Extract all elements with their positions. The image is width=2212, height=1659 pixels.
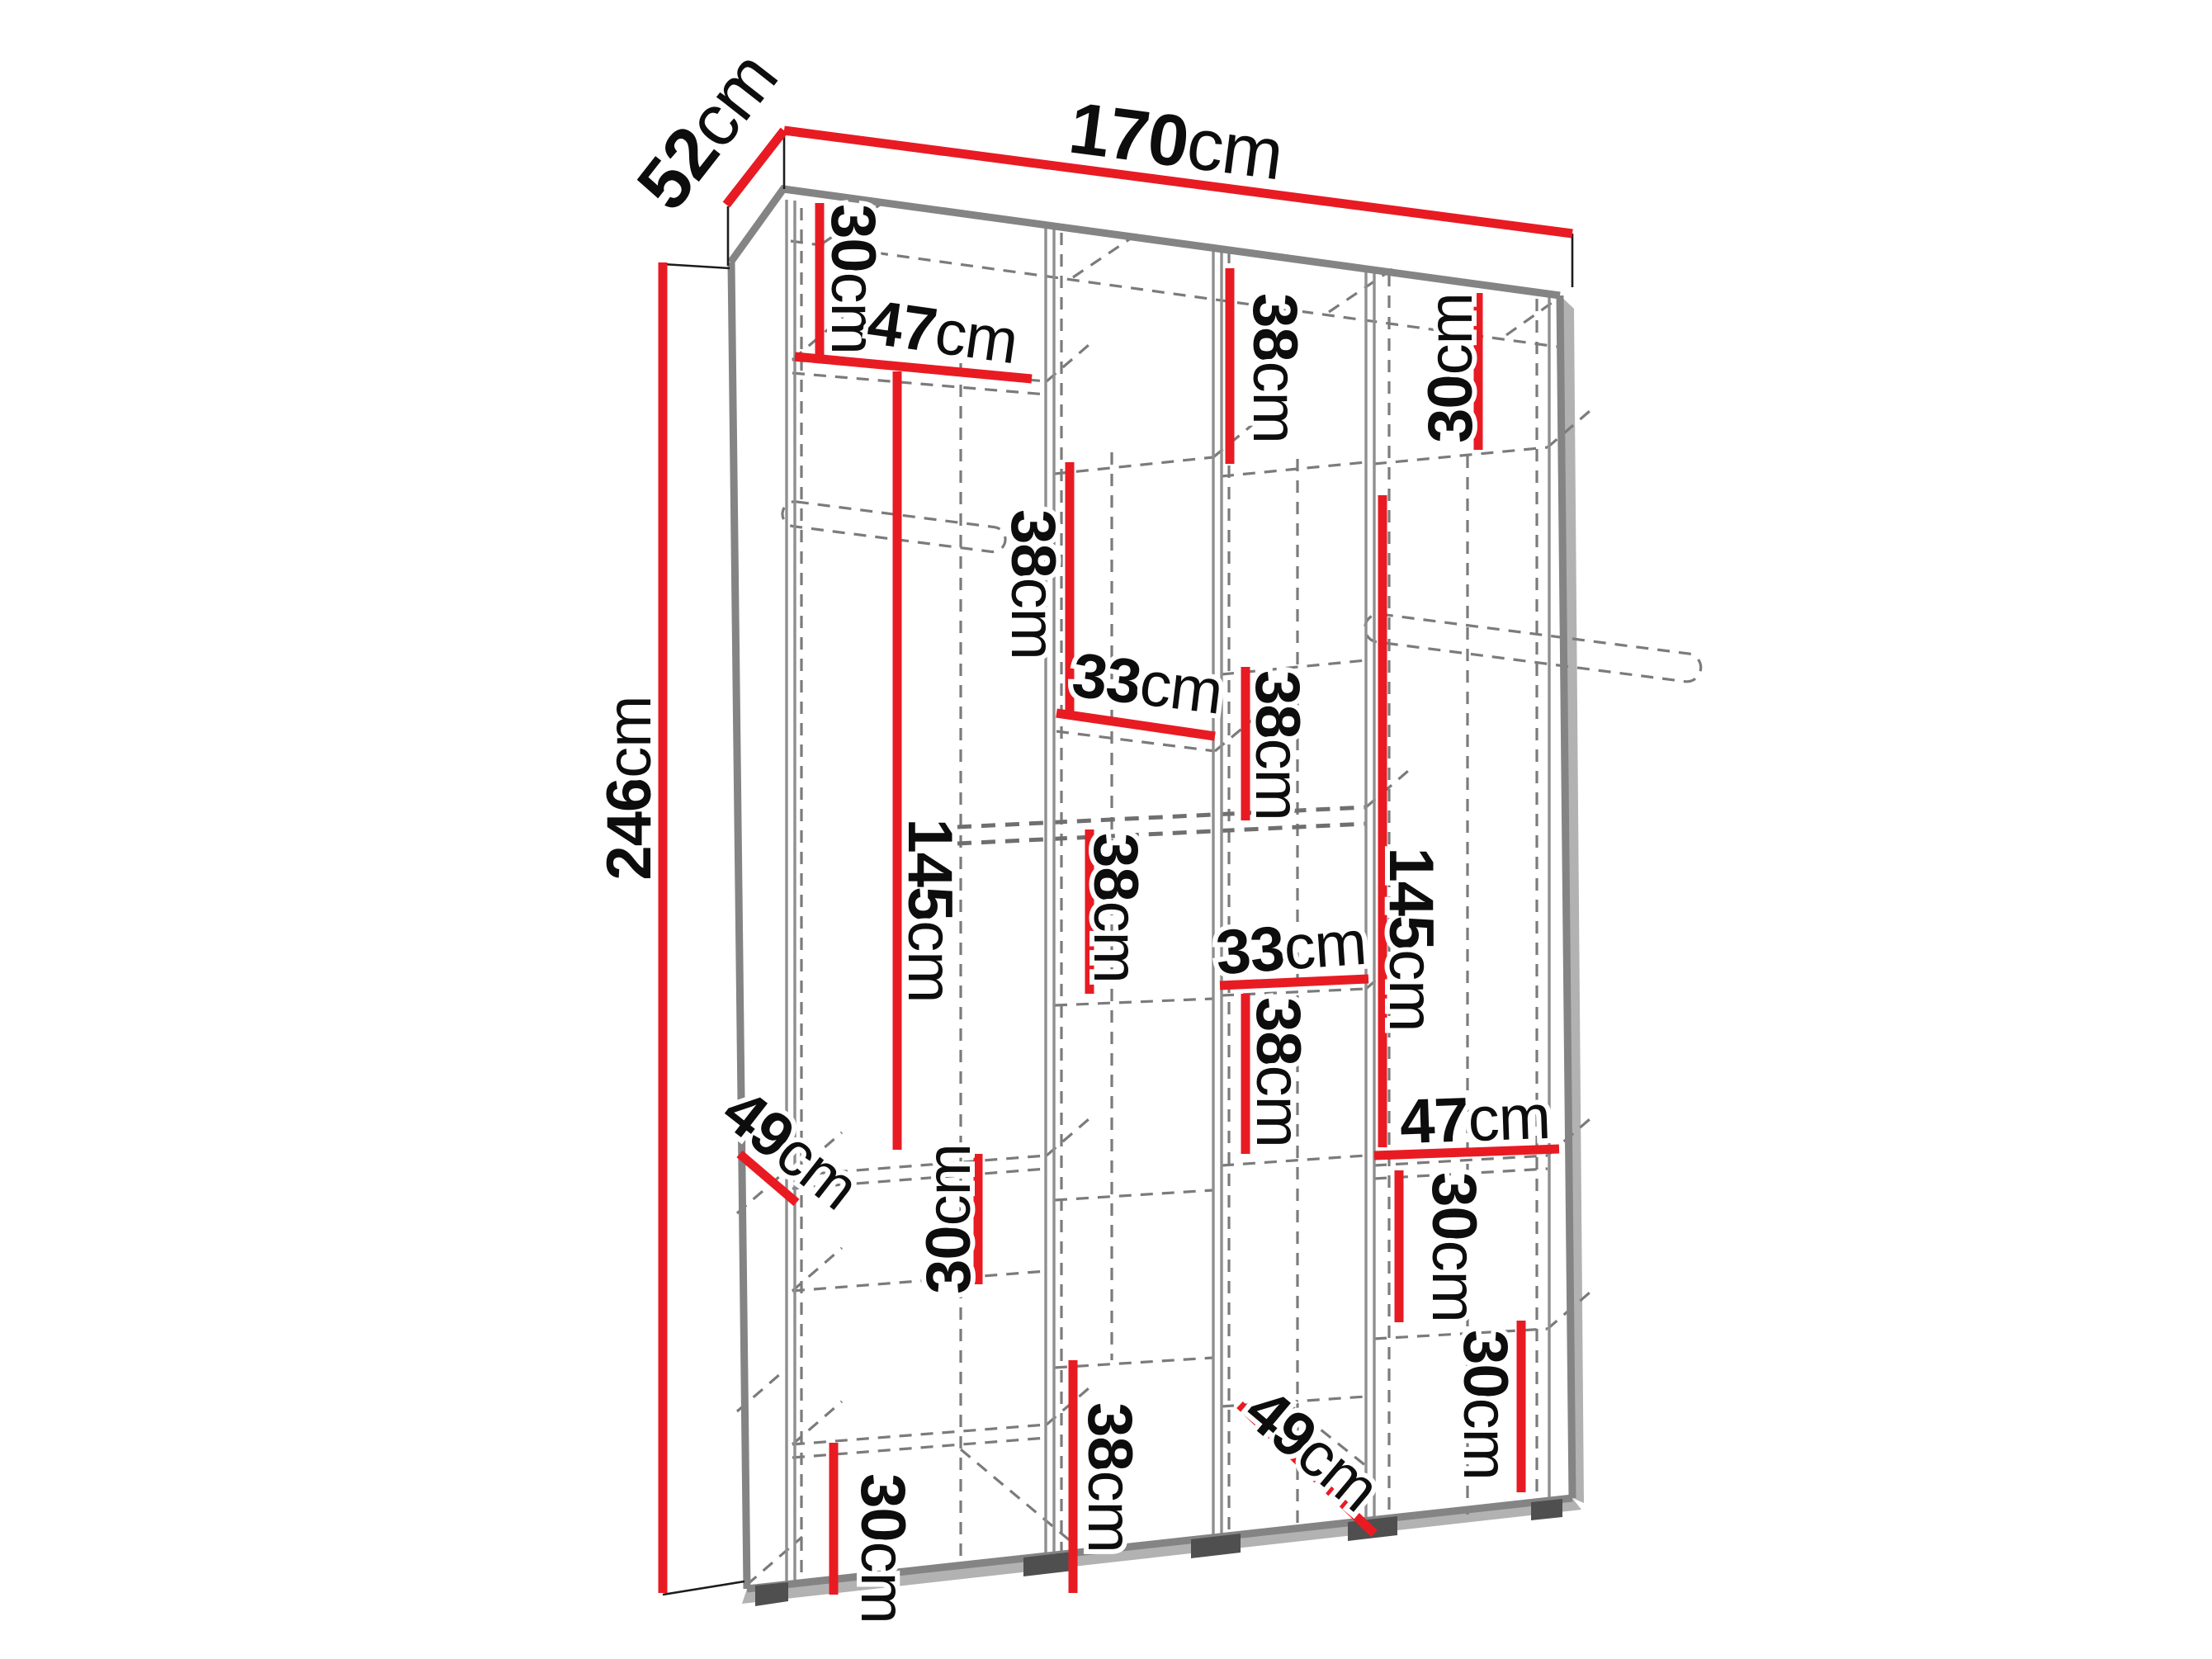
dimension-label: 33cm [1213, 907, 1368, 987]
dimension-d8-30cm: 30cm [914, 1144, 984, 1294]
dimension-d22-30cm: 30cm [1451, 1321, 1522, 1492]
dimension-label: 38cm [1244, 997, 1314, 1147]
dimension-label: 38cm [1243, 670, 1313, 820]
dimension-label: 38cm [1241, 293, 1311, 443]
dimension-label: 246cm [594, 696, 664, 880]
dimension-label: 30cm [914, 1144, 984, 1294]
dimension-d17-38cm: 38cm [1244, 994, 1314, 1154]
dimension-d20-47cm: 47cm [1374, 1081, 1559, 1156]
wardrobe-dimension-diagram: 52cm170cm246cm30cm47cm145cm49cm30cm30cm3… [0, 0, 2212, 1659]
dimension-d16-33cm: 33cm [1213, 907, 1368, 987]
dimension-d14-38cm: 38cm [1230, 268, 1311, 464]
dimension-label: 145cm [896, 818, 966, 1002]
dimension-label: 38cm [1081, 833, 1151, 983]
dimension-d19-30cm: 30cm [1416, 293, 1486, 450]
dimension-label: 38cm [1075, 1402, 1146, 1553]
dimension-label: 30cm [848, 1473, 919, 1624]
dimension-label: 38cm [999, 509, 1069, 659]
dimension-label: 30cm [1416, 293, 1486, 443]
dimension-d12-38cm: 38cm [1081, 829, 1151, 994]
diagram-stage: 52cm170cm246cm30cm47cm145cm49cm30cm30cm3… [0, 0, 2212, 1659]
dimension-label: 30cm [1451, 1330, 1521, 1480]
dimension-label: 30cm [1420, 1172, 1490, 1322]
dimension-d15-38cm: 38cm [1243, 667, 1313, 820]
dimension-label: 145cm [1377, 847, 1447, 1031]
dimension-label: 47cm [1399, 1081, 1552, 1156]
